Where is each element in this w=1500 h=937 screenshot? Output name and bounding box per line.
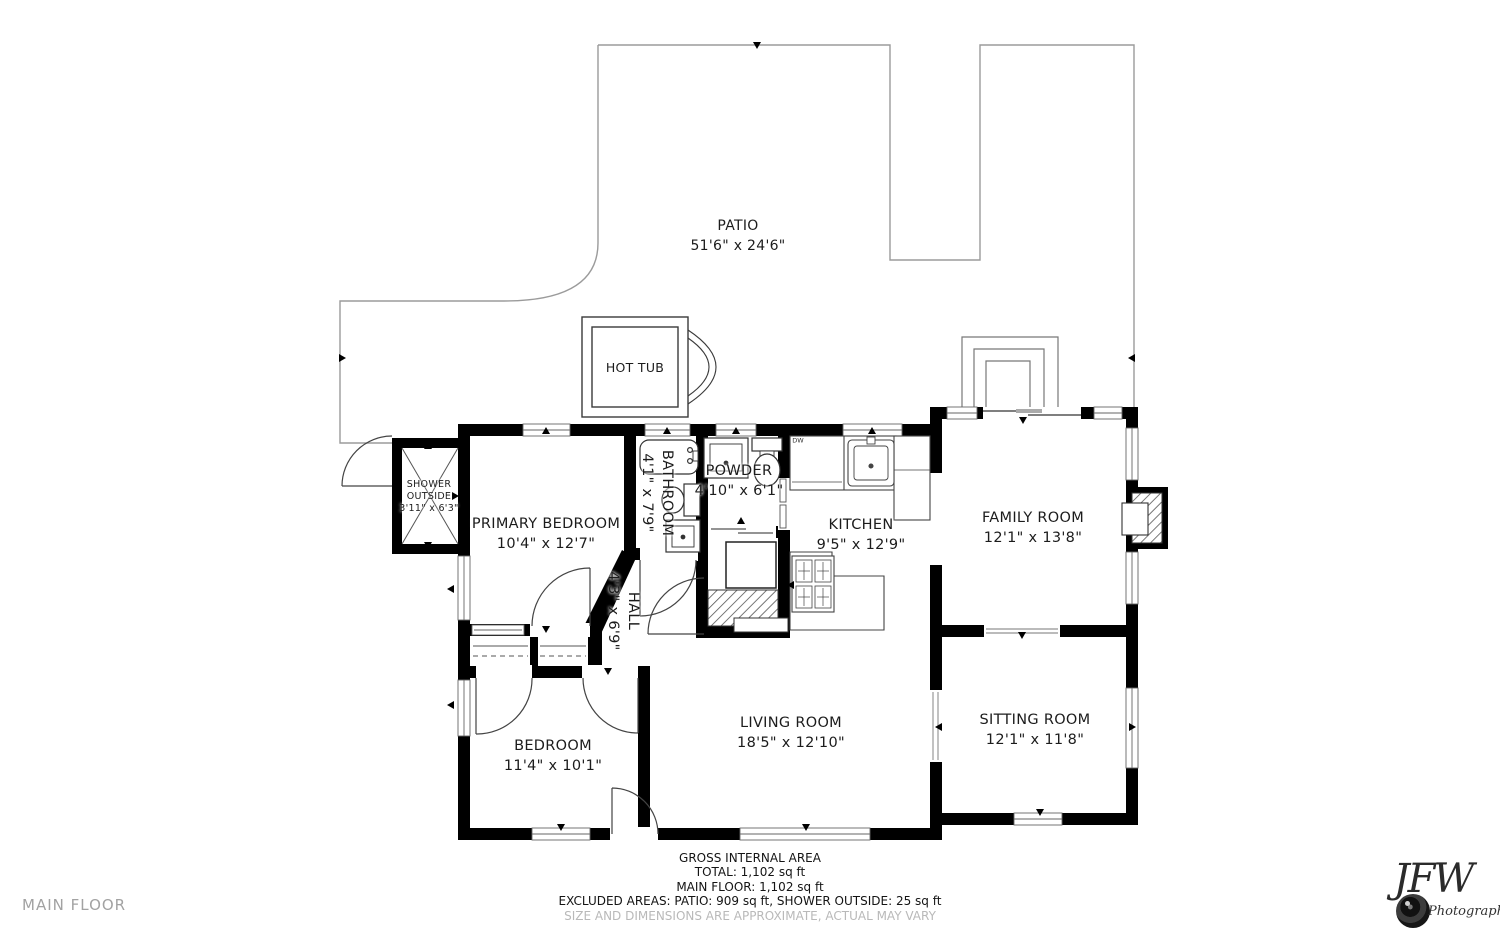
room-name: HALL [623, 571, 643, 650]
excluded-areas: EXCLUDED AREAS: PATIO: 909 sq ft, SHOWER… [450, 894, 1050, 908]
family-room-label: FAMILY ROOM 12'1" x 13'8" [982, 508, 1084, 548]
room-dims: 9'5" x 12'9" [817, 535, 906, 555]
shower-outside-label: SHOWER OUTSIDE 3'11" x 6'3" [389, 479, 469, 515]
primary-bedroom-label: PRIMARY BEDROOM 10'4" x 12'7" [472, 514, 620, 554]
room-name: SITTING ROOM [980, 710, 1091, 730]
room-name: LIVING ROOM [737, 713, 845, 733]
room-name: PRIMARY BEDROOM [472, 514, 620, 534]
hot-tub-name: HOT TUB [606, 358, 664, 378]
floor-name: MAIN FLOOR [22, 896, 126, 914]
patio-label: PATIO 51'6" x 24'6" [690, 216, 785, 256]
room-dims: 11'4" x 10'1" [504, 756, 602, 776]
disclaimer: SIZE AND DIMENSIONS ARE APPROXIMATE, ACT… [450, 909, 1050, 923]
room-dims: 12'1" x 13'8" [982, 528, 1084, 548]
gross-internal-area-title: GROSS INTERNAL AREA [450, 851, 1050, 865]
hall-label: HALL 4'3" x 6'9" [603, 571, 643, 650]
photographer-logo: JFW Photography [1372, 860, 1490, 934]
patio-dims: 51'6" x 24'6" [690, 236, 785, 256]
shower-outside-name: SHOWER OUTSIDE [389, 479, 469, 503]
living-room-label: LIVING ROOM 18'5" x 12'10" [737, 713, 845, 753]
room-dims: 10'4" x 12'7" [472, 534, 620, 554]
room-dims: 4'3" x 6'9" [603, 571, 623, 650]
room-dims: 12'1" x 11'8" [980, 730, 1091, 750]
room-dims: 18'5" x 12'10" [737, 733, 845, 753]
room-dims: 4'10" x 6'1" [695, 481, 784, 501]
kitchen-label: KITCHEN 9'5" x 12'9" [817, 515, 906, 555]
room-name: KITCHEN [817, 515, 906, 535]
porch-steps [962, 337, 1058, 407]
camera-lens-icon [1396, 894, 1430, 928]
room-name: POWDER [695, 461, 784, 481]
room-dims: 4'1" x 7'9" [637, 450, 657, 536]
dishwasher-label: DW [792, 438, 803, 445]
sitting-room-label: SITTING ROOM 12'1" x 11'8" [980, 710, 1091, 750]
bathroom-label: BATHROOM 4'1" x 7'9" [637, 450, 677, 536]
hot-tub-label: HOT TUB [606, 358, 664, 378]
powder-label: POWDER 4'10" x 6'1" [695, 461, 784, 501]
main-floor-area: MAIN FLOOR: 1,102 sq ft [450, 880, 1050, 894]
total-area: TOTAL: 1,102 sq ft [450, 865, 1050, 879]
bedroom-label: BEDROOM 11'4" x 10'1" [504, 736, 602, 776]
floor-plan-page: PATIO 51'6" x 24'6" HOT TUB SHOWER OUTSI… [0, 0, 1500, 937]
room-name: BEDROOM [504, 736, 602, 756]
logo-subtitle: Photography [1428, 904, 1500, 919]
shower-outside-dims: 3'11" x 6'3" [389, 503, 469, 515]
area-summary: GROSS INTERNAL AREA TOTAL: 1,102 sq ft M… [450, 851, 1050, 923]
room-name: FAMILY ROOM [982, 508, 1084, 528]
patio-name: PATIO [690, 216, 785, 236]
closets [473, 646, 586, 656]
logo-initials: JFW [1378, 856, 1488, 902]
room-name: BATHROOM [657, 450, 677, 536]
